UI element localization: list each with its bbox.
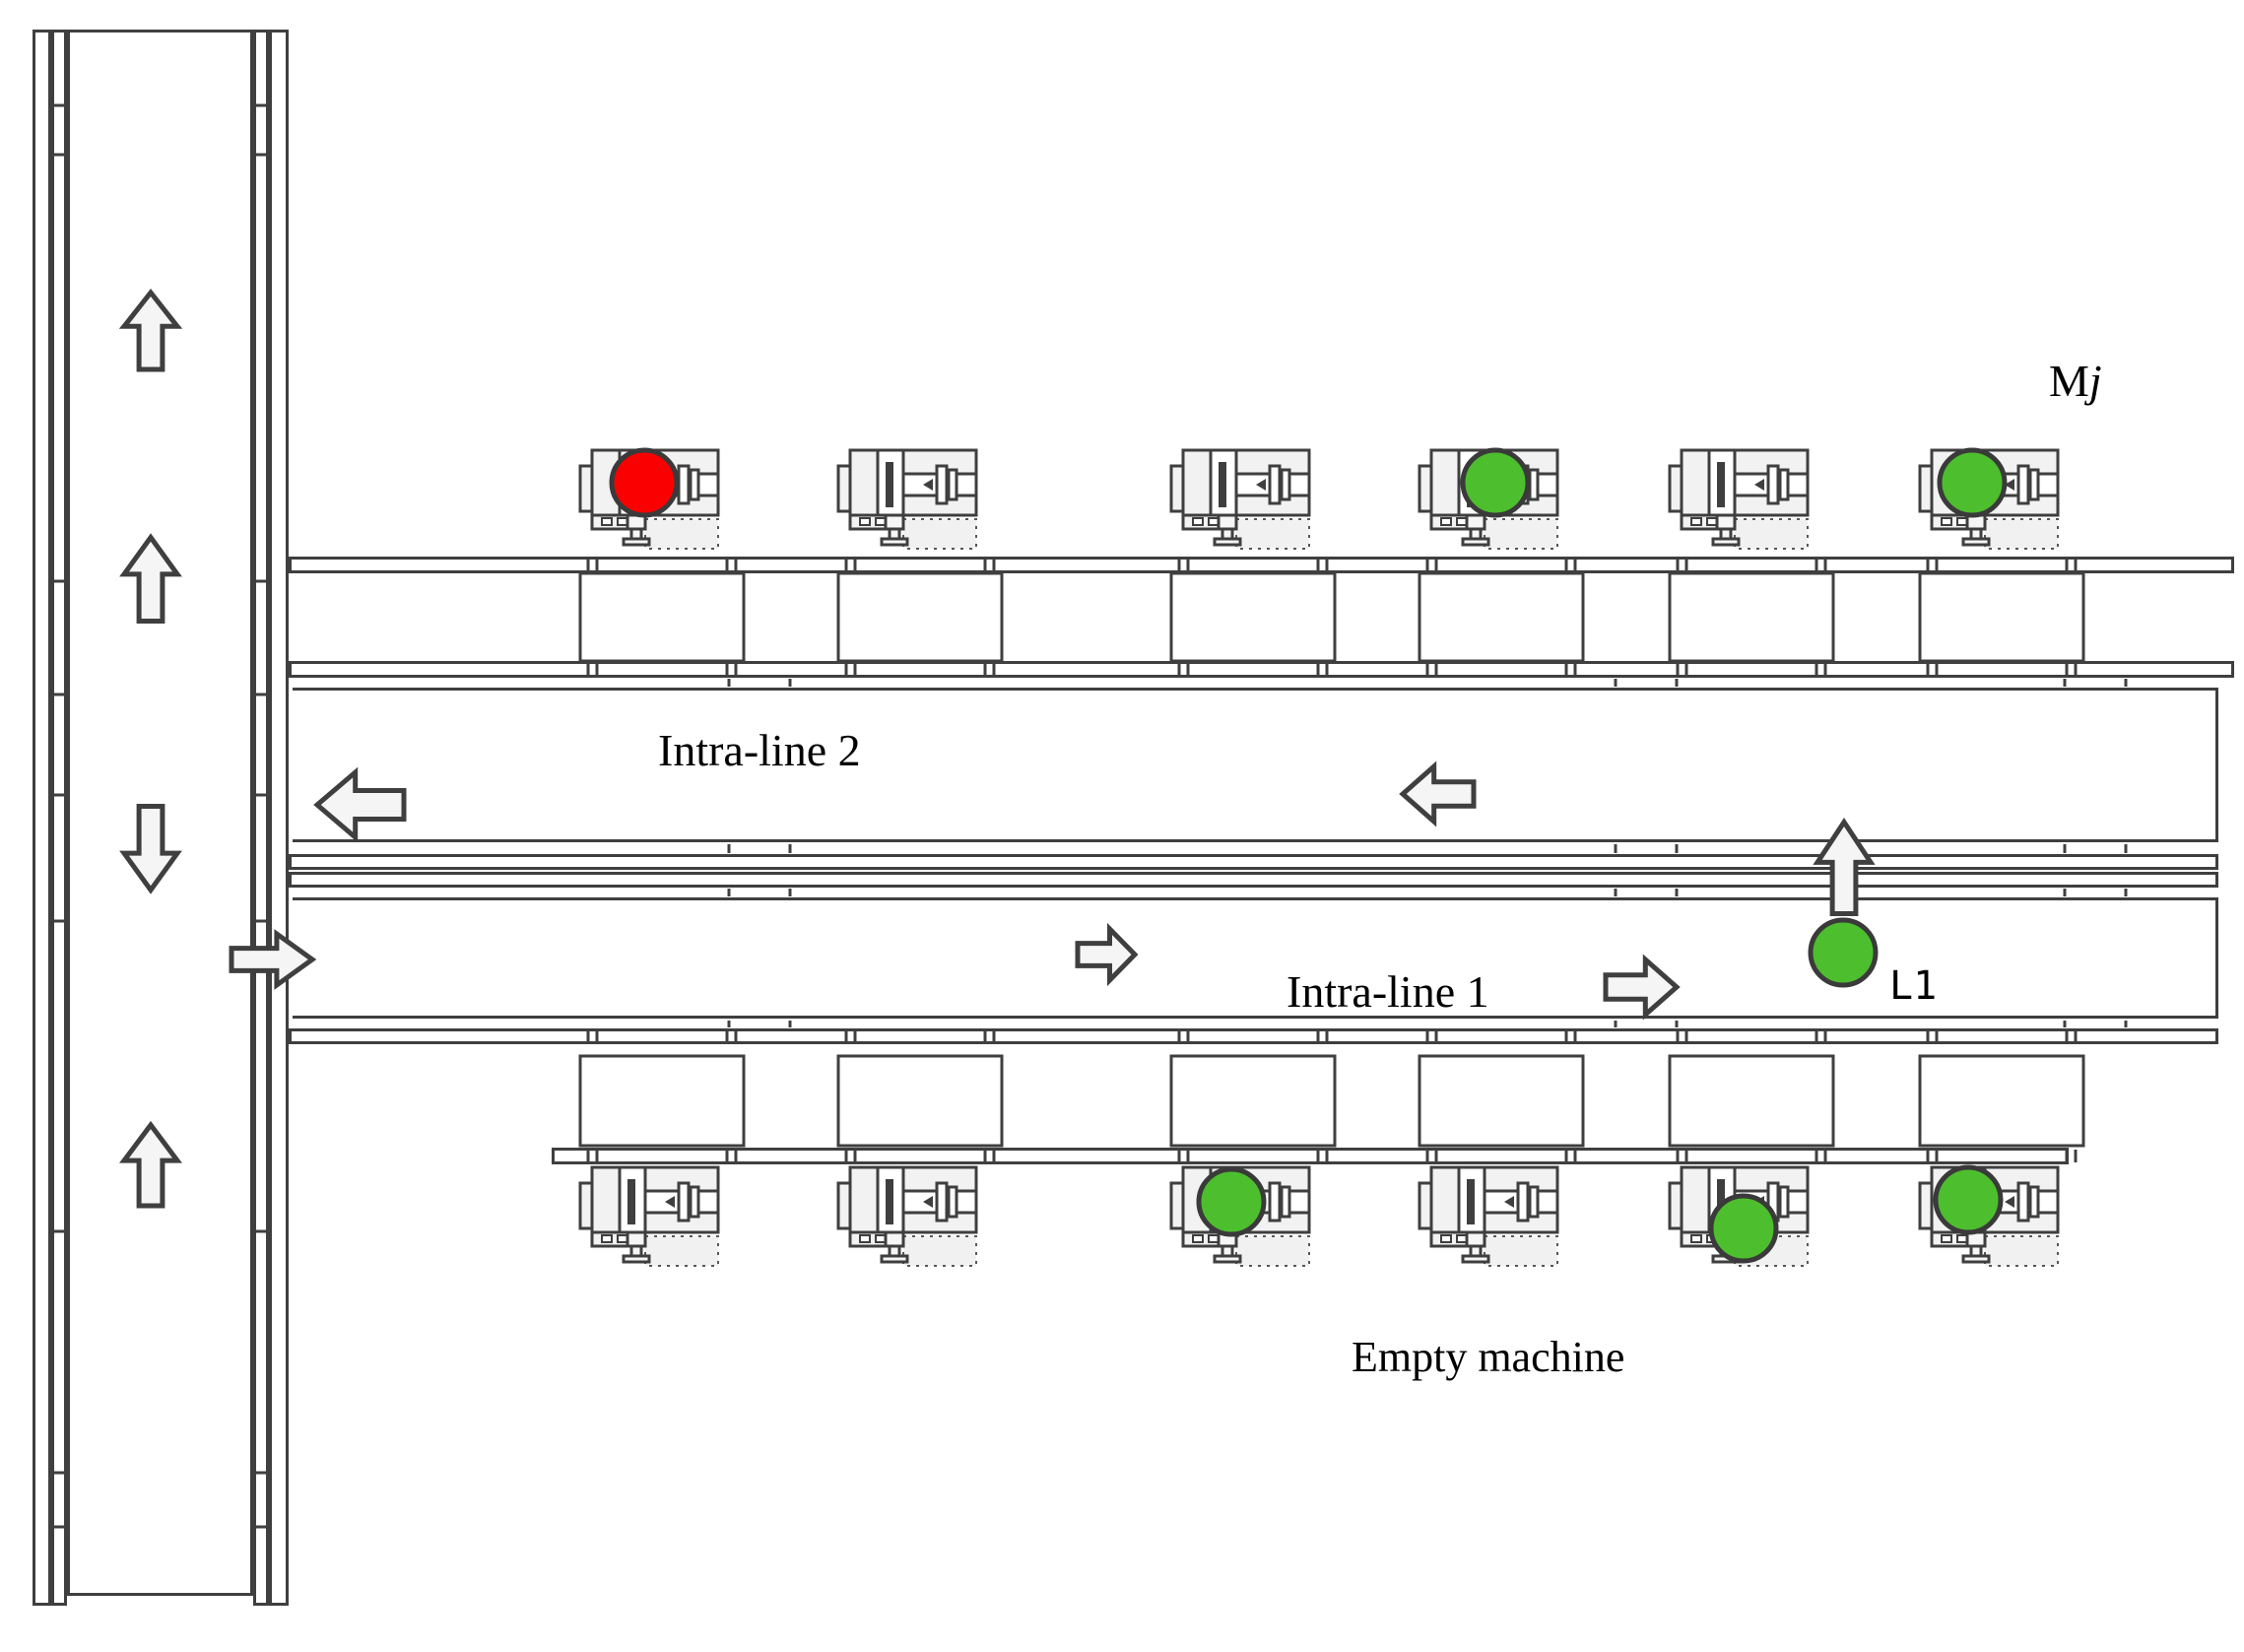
machine-tailstock bbox=[1670, 1183, 1682, 1228]
status-light-red-top-1 bbox=[612, 450, 677, 515]
machine-spindle bbox=[1270, 466, 1280, 503]
machine-chuck-column bbox=[627, 1179, 635, 1224]
conveyor-diagram: Mj Intra-line 2 Intra-line 1 L1 Empty ma… bbox=[0, 0, 2244, 1652]
intraline2-flow-left-1-arrow-icon bbox=[317, 772, 404, 837]
machine-stand bbox=[886, 1232, 903, 1246]
machine-spindle bbox=[937, 466, 947, 503]
buffer-box-bottom-4 bbox=[1419, 1056, 1583, 1146]
machine-icon-bottom-2 bbox=[838, 1167, 976, 1266]
machine-spindle-2 bbox=[2030, 470, 2038, 499]
machine-stand-foot bbox=[1215, 1256, 1240, 1262]
machine-work-area-dotted bbox=[645, 519, 718, 549]
intraline2-label: Intra-line 2 bbox=[658, 724, 861, 776]
transfer-up-arrow-icon bbox=[1817, 823, 1871, 914]
machine-spindle-2 bbox=[1530, 470, 1538, 499]
machine-spindle bbox=[679, 1183, 689, 1221]
machine-spindle-2 bbox=[2030, 1187, 2038, 1217]
intraline2-flow-left-2-arrow-icon bbox=[1403, 766, 1474, 822]
buffer-box-bottom-5 bbox=[1670, 1056, 1833, 1146]
machine-foot bbox=[1193, 518, 1203, 525]
machine-spindle-2 bbox=[949, 470, 957, 499]
machine-spindle bbox=[1270, 1183, 1280, 1221]
status-light-green-bottom-5 bbox=[1711, 1196, 1776, 1261]
buffer-box-top-6 bbox=[1920, 573, 2083, 661]
machine-work-area-dotted bbox=[1985, 1236, 2058, 1266]
machine-foot bbox=[860, 1235, 870, 1242]
machine-spindle bbox=[937, 1183, 947, 1221]
machine-spindle-2 bbox=[691, 470, 698, 499]
buffer-box-top-2 bbox=[838, 573, 1002, 661]
intraline1-label: Intra-line 1 bbox=[1287, 965, 1489, 1018]
machine-foot bbox=[1441, 518, 1451, 525]
machine-icon-top-3 bbox=[1171, 450, 1309, 549]
machine-spindle bbox=[2018, 1183, 2028, 1221]
machine-spindle bbox=[679, 466, 689, 503]
machine-work-area-dotted bbox=[645, 1236, 718, 1266]
status-light-green-top-6 bbox=[1940, 450, 2005, 515]
machine-tailstock bbox=[580, 1183, 592, 1228]
machine-work-area-dotted bbox=[1985, 519, 2058, 549]
machine-tailstock bbox=[1419, 466, 1431, 511]
machine-chuck-column bbox=[1467, 1179, 1475, 1224]
machine-icon-top-2 bbox=[838, 450, 976, 549]
machine-tailstock bbox=[838, 466, 850, 511]
buffer-box-bottom-6 bbox=[1920, 1056, 2083, 1146]
machine-spindle-2 bbox=[1780, 470, 1788, 499]
machine-spindle-2 bbox=[1780, 1187, 1788, 1217]
machine-foot bbox=[1691, 1235, 1701, 1242]
machine-tailstock bbox=[1419, 1183, 1431, 1228]
intraline1-entry-right-arrow-icon bbox=[231, 934, 312, 985]
machine-stand-foot bbox=[1713, 539, 1739, 545]
machine-row-label-j: j bbox=[2089, 356, 2102, 406]
machine-stand-foot bbox=[1963, 539, 1989, 545]
part-L1-circle bbox=[1811, 920, 1876, 985]
machine-stand-foot bbox=[1963, 1256, 1989, 1262]
status-light-green-top-4 bbox=[1463, 450, 1528, 515]
machine-tailstock bbox=[580, 466, 592, 511]
intraline1-flow-right-2-arrow-icon bbox=[1606, 959, 1677, 1015]
status-light-green-bottom-3 bbox=[1199, 1169, 1264, 1234]
machine-stand bbox=[1467, 1232, 1485, 1246]
machine-spindle-2 bbox=[691, 1187, 698, 1217]
machine-spindle-2 bbox=[1282, 470, 1289, 499]
status-light-green-bottom-6 bbox=[1936, 1167, 2001, 1232]
machine-stand-foot bbox=[882, 1256, 907, 1262]
machine-work-area-dotted bbox=[1485, 519, 1557, 549]
trunk-flow-down-arrow-icon bbox=[124, 807, 177, 891]
machine-chuck-column bbox=[886, 462, 893, 507]
machine-stand bbox=[1717, 515, 1735, 529]
machine-stand bbox=[1219, 515, 1236, 529]
machine-spindle-2 bbox=[1530, 1187, 1538, 1217]
machine-chuck-column bbox=[1219, 462, 1226, 507]
machine-spindle-2 bbox=[949, 1187, 957, 1217]
machine-stand-foot bbox=[882, 539, 907, 545]
buffer-box-top-4 bbox=[1419, 573, 1583, 661]
machine-spindle bbox=[1768, 466, 1778, 503]
machine-work-area-dotted bbox=[1485, 1236, 1557, 1266]
machine-icon-bottom-1 bbox=[580, 1167, 718, 1266]
machine-spindle-2 bbox=[1282, 1187, 1289, 1217]
machine-tailstock bbox=[838, 1183, 850, 1228]
empty-machine-label: Empty machine bbox=[1352, 1332, 1624, 1382]
buffer-box-bottom-1 bbox=[580, 1056, 744, 1146]
machine-stand bbox=[627, 1232, 645, 1246]
machine-stand-foot bbox=[624, 1256, 649, 1262]
machine-chuck-column bbox=[1717, 462, 1725, 507]
machine-tailstock bbox=[1171, 466, 1183, 511]
machine-foot bbox=[860, 518, 870, 525]
buffer-box-top-5 bbox=[1670, 573, 1833, 661]
machine-stand-foot bbox=[1215, 539, 1240, 545]
machine-chuck-column bbox=[886, 1179, 893, 1224]
machine-work-area-dotted bbox=[1735, 519, 1808, 549]
machine-foot bbox=[1942, 1235, 1951, 1242]
machine-foot bbox=[602, 518, 612, 525]
intraline1-flow-right-1-arrow-icon bbox=[1078, 929, 1135, 980]
machine-spindle bbox=[2018, 466, 2028, 503]
machine-tailstock bbox=[1920, 466, 1932, 511]
machine-icon-bottom-4 bbox=[1419, 1167, 1557, 1266]
machine-foot bbox=[602, 1235, 612, 1242]
trunk-flow-up-1-arrow-icon bbox=[124, 293, 177, 369]
machine-row-label: Mj bbox=[2049, 355, 2102, 407]
machine-stand-foot bbox=[624, 539, 649, 545]
diagram-overlay bbox=[0, 0, 2244, 1652]
machine-foot bbox=[1942, 518, 1951, 525]
machine-stand bbox=[1467, 515, 1485, 529]
machine-work-area-dotted bbox=[1236, 519, 1309, 549]
machine-tailstock bbox=[1920, 1183, 1932, 1228]
buffer-box-bottom-2 bbox=[838, 1056, 1002, 1146]
machine-work-area-dotted bbox=[1236, 1236, 1309, 1266]
machine-tailstock bbox=[1171, 1183, 1183, 1228]
machine-foot bbox=[1193, 1235, 1203, 1242]
machine-icon-top-5 bbox=[1670, 450, 1808, 549]
load-item-label: L1 bbox=[1889, 963, 1937, 1009]
machine-spindle bbox=[1518, 1183, 1528, 1221]
buffer-box-top-3 bbox=[1171, 573, 1335, 661]
machine-work-area-dotted bbox=[903, 1236, 976, 1266]
machine-foot bbox=[1691, 518, 1701, 525]
machine-row-label-m: M bbox=[2049, 356, 2089, 406]
buffer-box-bottom-3 bbox=[1171, 1056, 1335, 1146]
machine-foot bbox=[1441, 1235, 1451, 1242]
machine-stand bbox=[886, 515, 903, 529]
trunk-flow-up-2-arrow-icon bbox=[124, 538, 177, 622]
trunk-flow-up-3-arrow-icon bbox=[124, 1125, 177, 1206]
machine-work-area-dotted bbox=[903, 519, 976, 549]
buffer-box-top-1 bbox=[580, 573, 744, 661]
machine-tailstock bbox=[1670, 466, 1682, 511]
machine-stand-foot bbox=[1463, 1256, 1488, 1262]
machine-stand-foot bbox=[1463, 539, 1488, 545]
